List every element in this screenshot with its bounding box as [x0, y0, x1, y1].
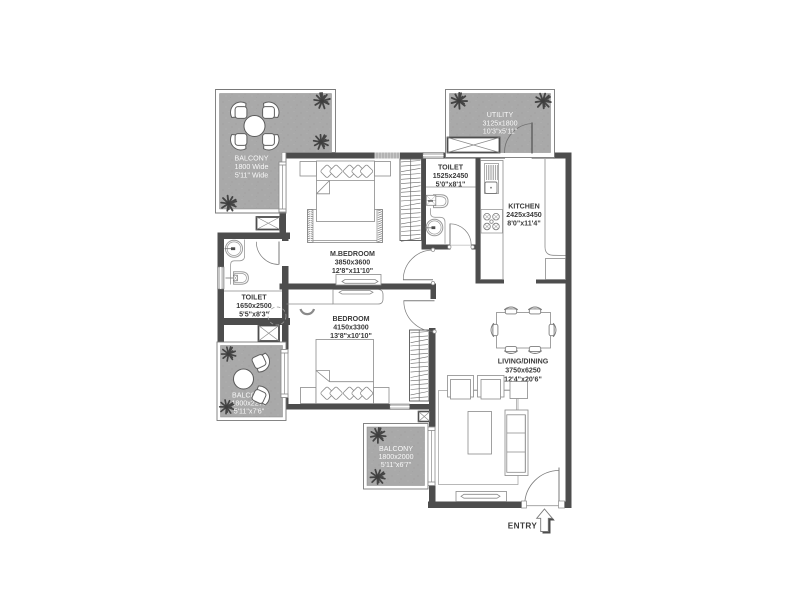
svg-text:1800 Wide: 1800 Wide: [235, 163, 269, 171]
svg-text:5'5"x8'3": 5'5"x8'3": [239, 311, 269, 319]
svg-text:TOILET: TOILET: [241, 294, 267, 302]
svg-text:3850x3600: 3850x3600: [335, 259, 371, 267]
svg-text:12'8"x11'10": 12'8"x11'10": [332, 267, 373, 275]
svg-text:5'11"x7'6": 5'11"x7'6": [234, 408, 265, 416]
svg-text:1650x2500: 1650x2500: [236, 302, 272, 310]
svg-text:5'11"x6'7": 5'11"x6'7": [381, 461, 412, 469]
svg-text:TOILET: TOILET: [438, 164, 464, 172]
svg-text:BALCONY: BALCONY: [379, 445, 413, 453]
svg-text:4150x3300: 4150x3300: [333, 324, 369, 332]
svg-text:M.BEDROOM: M.BEDROOM: [330, 250, 375, 258]
svg-text:UTILITY: UTILITY: [487, 111, 514, 119]
svg-text:BEDROOM: BEDROOM: [332, 315, 369, 323]
svg-text:1525x2450: 1525x2450: [433, 172, 469, 180]
svg-text:3125x1800: 3125x1800: [482, 120, 517, 128]
svg-text:13'8"x10'10": 13'8"x10'10": [330, 332, 372, 340]
svg-text:5'11" Wide: 5'11" Wide: [235, 172, 268, 180]
svg-text:ENTRY: ENTRY: [508, 522, 538, 531]
svg-text:BALCONY: BALCONY: [235, 155, 269, 163]
svg-text:KITCHEN: KITCHEN: [508, 203, 540, 211]
svg-text:LIVING/DINING: LIVING/DINING: [498, 358, 549, 366]
svg-text:2425x3450: 2425x3450: [506, 211, 542, 219]
svg-text:8'0"x11'4": 8'0"x11'4": [507, 220, 540, 228]
svg-text:1800x2000: 1800x2000: [378, 453, 413, 461]
svg-text:5'0"x8'1": 5'0"x8'1": [436, 181, 466, 189]
svg-text:3750x6250: 3750x6250: [505, 367, 541, 375]
svg-text:10'3"x5'11": 10'3"x5'11": [483, 128, 518, 136]
